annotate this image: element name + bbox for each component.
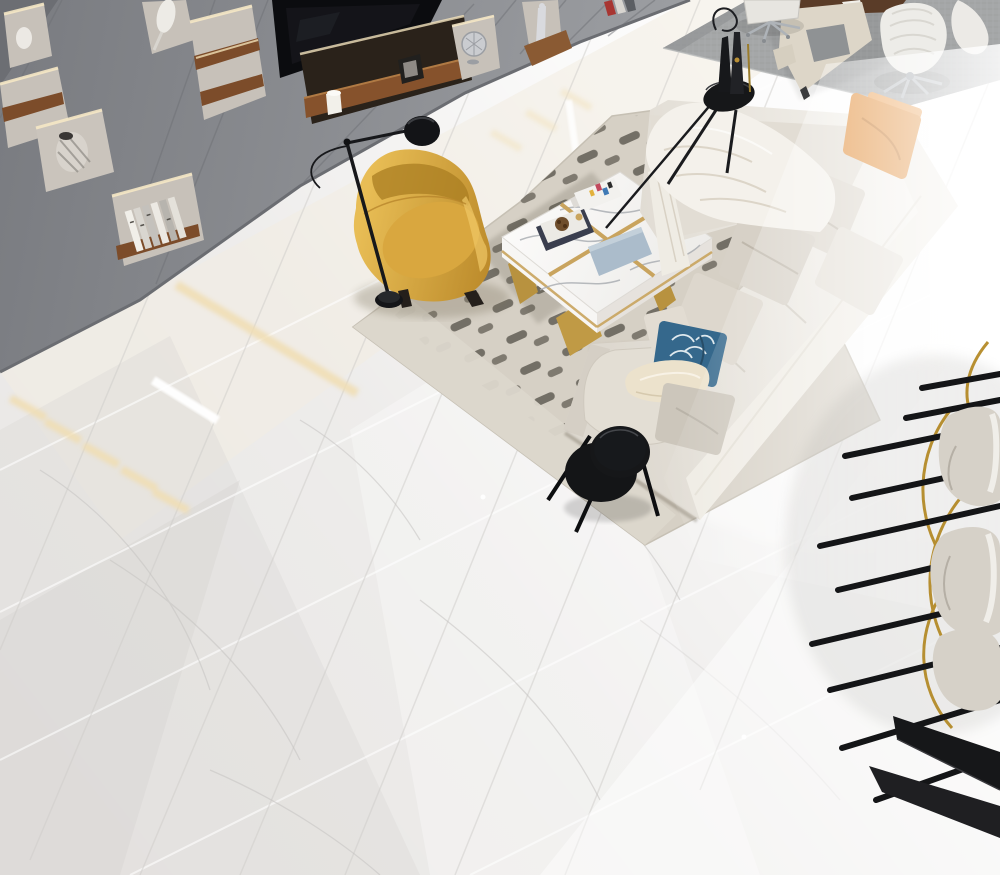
living-room-photo bbox=[0, 0, 1000, 875]
lamp-shade bbox=[404, 116, 440, 146]
pinecone-decor bbox=[555, 217, 569, 231]
chair-shells bbox=[930, 407, 1000, 711]
white-vase bbox=[16, 27, 32, 49]
lamp-joint bbox=[344, 139, 351, 146]
gold-ball bbox=[576, 214, 583, 221]
